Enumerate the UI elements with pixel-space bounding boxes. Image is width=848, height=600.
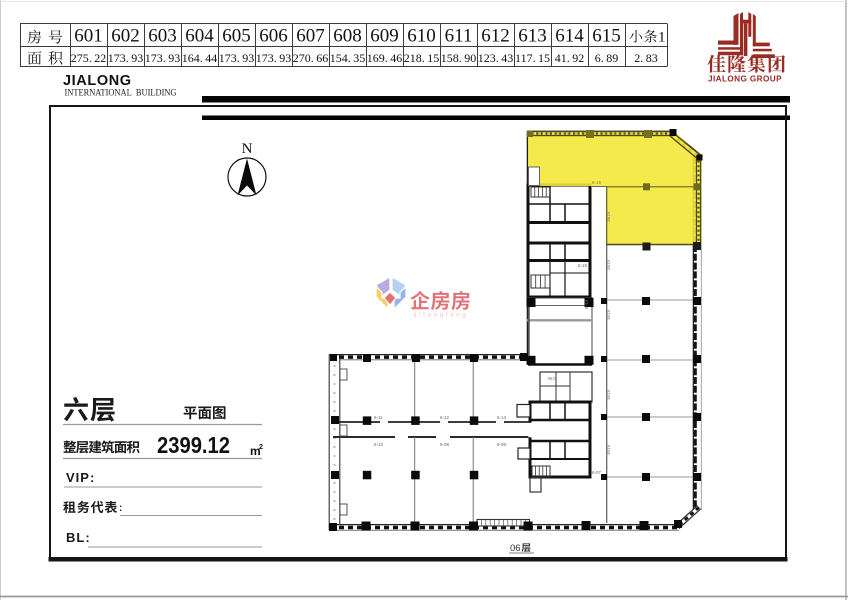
svg-text:6-15: 6-15 [578,263,588,268]
svg-text:06: 06 [510,543,521,554]
svg-text:602: 602 [111,26,140,47]
svg-text:6-07: 6-07 [592,470,602,475]
svg-text:2. 83: 2. 83 [634,51,657,65]
svg-text:117. 15: 117. 15 [515,51,550,65]
svg-text:3619: 3619 [606,389,611,400]
svg-text:VIP:: VIP: [66,470,95,485]
svg-text:6-09: 6-09 [440,442,450,447]
svg-text:3619: 3619 [606,444,611,455]
svg-text:606: 606 [259,26,288,47]
svg-text:173. 93: 173. 93 [256,51,291,65]
svg-text:270. 66: 270. 66 [293,51,328,65]
svg-text:W.C: W.C [548,376,557,381]
svg-text:2399.12: 2399.12 [157,432,230,458]
svg-text:1: 1 [658,30,666,46]
svg-text:164. 44: 164. 44 [182,51,217,65]
svg-text:173. 93: 173. 93 [219,51,254,65]
svg-text:173. 93: 173. 93 [145,51,180,65]
svg-text:6. 89: 6. 89 [595,51,618,65]
svg-text:615: 615 [592,26,621,47]
svg-text:6-08: 6-08 [497,442,507,447]
svg-text:JIALONG GROUP: JIALONG GROUP [708,75,782,84]
svg-text:218. 15: 218. 15 [404,51,439,65]
svg-text:8-14: 8-14 [584,299,589,309]
svg-text:6-19: 6-19 [592,180,602,185]
svg-text:603: 603 [148,26,177,47]
svg-text:612: 612 [481,26,510,47]
svg-text:608: 608 [333,26,362,47]
svg-text:qifangfang: qifangfang [413,312,468,319]
svg-text:6-11: 6-11 [374,415,383,420]
svg-text:605: 605 [222,26,251,47]
svg-text:123. 43: 123. 43 [478,51,513,65]
svg-text:613: 613 [518,26,547,47]
svg-text:INTERNATIONAL BUILDING: INTERNATIONAL BUILDING [65,88,177,98]
svg-text:BL:: BL: [66,530,91,545]
svg-text:6-12: 6-12 [440,415,450,420]
svg-text:611: 611 [445,26,473,47]
svg-text:614: 614 [555,26,584,47]
svg-text:2: 2 [259,444,263,451]
svg-text:604: 604 [185,26,214,47]
svg-text:6-10: 6-10 [374,442,384,447]
svg-text:609: 609 [370,26,399,47]
svg-text:3619: 3619 [606,211,611,222]
svg-text:158. 90: 158. 90 [441,51,476,65]
svg-text:41. 92: 41. 92 [555,51,584,65]
svg-text:169. 46: 169. 46 [367,51,402,65]
svg-text:173. 93: 173. 93 [108,51,143,65]
svg-text:610: 610 [407,26,436,47]
svg-text:601: 601 [74,26,103,47]
svg-text:275. 22: 275. 22 [71,51,106,65]
svg-text:3619: 3619 [606,259,611,270]
svg-text::: : [119,503,122,514]
svg-text:154. 35: 154. 35 [330,51,365,65]
svg-text:607: 607 [296,26,325,47]
svg-text:6-13: 6-13 [497,415,507,420]
svg-text:N: N [242,141,253,157]
svg-text:3619: 3619 [606,309,611,320]
